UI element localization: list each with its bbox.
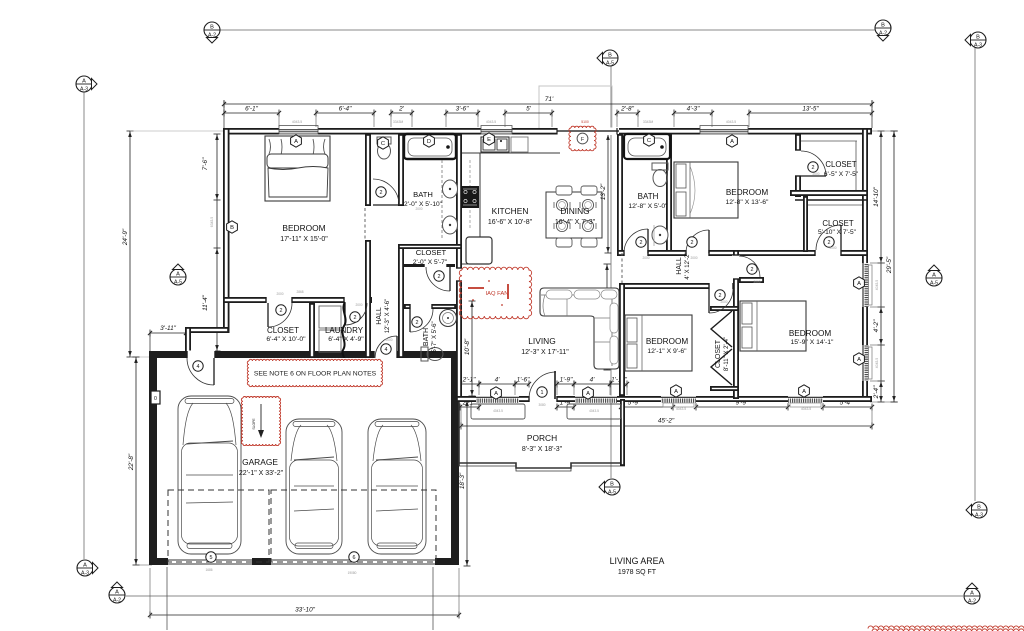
svg-text:12'-8" X 5'-0": 12'-8" X 5'-0" [628, 203, 668, 210]
svg-text:2000: 2000 [829, 246, 836, 250]
svg-text:C: C [647, 138, 651, 144]
svg-text:5100: 5100 [581, 120, 589, 124]
svg-text:BEDROOM: BEDROOM [789, 329, 831, 338]
svg-text:2868: 2868 [296, 290, 303, 294]
svg-text:2: 2 [640, 240, 643, 246]
svg-text:HALL: HALL [676, 257, 683, 275]
svg-text:2: 2 [354, 315, 357, 321]
svg-text:A: A [857, 281, 861, 287]
svg-text:2000: 2000 [812, 172, 819, 176]
svg-text:2'-8": 2'-8" [620, 106, 634, 113]
svg-text:2': 2' [398, 106, 405, 113]
svg-text:A: A [730, 139, 734, 145]
svg-text:A: A [83, 563, 87, 569]
svg-text:BEDROOM: BEDROOM [282, 223, 325, 233]
svg-text:11'-4": 11'-4" [202, 294, 209, 311]
svg-text:D: D [427, 139, 431, 145]
svg-text:CLOSET: CLOSET [416, 248, 447, 257]
svg-text:6343.5: 6343.5 [210, 217, 214, 227]
svg-text:A: A [176, 272, 180, 278]
svg-text:A-5: A-5 [608, 490, 616, 496]
svg-text:16'-4" X 7'-3": 16'-4" X 7'-3" [555, 219, 596, 226]
svg-text:A: A [294, 139, 298, 145]
svg-text:4043.5: 4043.5 [801, 407, 811, 411]
svg-text:2: 2 [719, 293, 722, 299]
svg-text:14'-10": 14'-10" [873, 186, 880, 207]
svg-text:17'-11" X 15'-0": 17'-11" X 15'-0" [280, 236, 328, 243]
svg-text:LIVING AREA: LIVING AREA [610, 556, 665, 566]
svg-text:33'-10": 33'-10" [295, 607, 316, 614]
svg-text:1686: 1686 [205, 568, 212, 572]
svg-text:4043.5: 4043.5 [292, 120, 302, 124]
svg-text:2: 2 [691, 240, 694, 246]
svg-text:5'-10" X 7'-5": 5'-10" X 7'-5" [818, 229, 857, 236]
svg-text:2000: 2000 [753, 280, 760, 284]
svg-text:2'-0" X 5'-7": 2'-0" X 5'-7" [413, 259, 448, 266]
svg-text:4043.5: 4043.5 [676, 407, 686, 411]
svg-text:B: B [976, 35, 980, 41]
svg-text:A: A [932, 273, 936, 279]
svg-text:F: F [581, 137, 585, 143]
svg-text:6'-4": 6'-4" [339, 106, 352, 113]
svg-text:IAQ FAN: IAQ FAN [486, 291, 509, 297]
svg-text:29'-5": 29'-5" [886, 256, 893, 274]
svg-text:22'-1" X 33'-2": 22'-1" X 33'-2" [239, 470, 284, 477]
svg-text:6'-4" X 10'-0": 6'-4" X 10'-0" [266, 336, 306, 343]
svg-text:BATH: BATH [413, 190, 433, 199]
svg-text:A-5: A-5 [930, 281, 938, 287]
svg-text:B: B [230, 225, 234, 231]
svg-text:71': 71' [545, 96, 554, 103]
svg-text:0: 0 [154, 396, 157, 402]
svg-text:A: A [115, 590, 119, 596]
svg-text:6: 6 [353, 555, 356, 561]
svg-text:2: 2 [751, 267, 754, 273]
svg-text:6'-4" X 4'-9": 6'-4" X 4'-9" [328, 336, 364, 343]
svg-text:7'-6": 7'-6" [202, 157, 209, 170]
svg-text:A-2: A-2 [968, 599, 976, 605]
svg-text:2'-1": 2'-1" [462, 377, 476, 384]
svg-text:A-3: A-3 [975, 513, 983, 519]
svg-text:13'-5": 13'-5" [802, 106, 819, 113]
svg-text:B: B [881, 23, 885, 29]
svg-text:KITCHEN: KITCHEN [492, 206, 529, 216]
svg-text:A-5: A-5 [606, 61, 614, 67]
svg-text:E: E [487, 137, 491, 143]
svg-text:12'-8" X 13'-6": 12'-8" X 13'-6" [726, 199, 770, 206]
svg-text:22'-8": 22'-8" [128, 453, 135, 471]
svg-text:A: A [674, 389, 678, 395]
svg-text:4043.5: 4043.5 [875, 358, 879, 368]
svg-text:5': 5' [526, 106, 532, 113]
svg-text:A: A [802, 389, 806, 395]
svg-text:SLOPE: SLOPE [252, 418, 256, 430]
svg-text:2000: 2000 [642, 256, 649, 260]
svg-text:CLOSET: CLOSET [825, 160, 856, 169]
svg-text:15'-9" X 14'-1": 15'-9" X 14'-1" [791, 339, 835, 346]
svg-text:B: B [210, 25, 214, 31]
svg-text:4043.5: 4043.5 [486, 120, 496, 124]
svg-text:2'-0" X 5'-10": 2'-0" X 5'-10" [404, 201, 443, 208]
svg-text:2000: 2000 [385, 338, 392, 342]
svg-text:2: 2 [380, 190, 383, 196]
svg-text:A-5: A-5 [174, 280, 182, 286]
svg-text:4'-2": 4'-2" [873, 319, 880, 332]
svg-text:10'-8": 10'-8" [464, 338, 471, 355]
svg-text:4043.5: 4043.5 [726, 120, 736, 124]
svg-text:CLOSET: CLOSET [715, 339, 722, 368]
svg-text:4'-3": 4'-3" [687, 106, 700, 113]
svg-text:A: A [586, 391, 590, 397]
svg-text:4: 4 [197, 364, 200, 370]
svg-text:24'-9": 24'-9" [122, 228, 129, 246]
svg-text:4043.5: 4043.5 [493, 409, 503, 413]
svg-text:A: A [494, 391, 498, 397]
svg-text:5: 5 [210, 555, 213, 561]
svg-text:2: 2 [416, 320, 419, 326]
svg-text:8'-11" X 2'-4": 8'-11" X 2'-4" [724, 337, 730, 371]
svg-text:18'-3": 18'-3" [459, 472, 466, 489]
svg-text:2000: 2000 [720, 300, 727, 304]
svg-text:4' X 12'-2": 4' X 12'-2" [685, 252, 691, 279]
svg-text:3'-11": 3'-11" [160, 325, 177, 332]
svg-text:12'-3" X 17'-11": 12'-3" X 17'-11" [521, 349, 569, 356]
svg-text:2'-4": 2'-4" [873, 385, 880, 399]
svg-text:DINING: DINING [560, 206, 589, 216]
svg-text:3080: 3080 [538, 403, 545, 407]
svg-text:16'-6" X 10'-8": 16'-6" X 10'-8" [488, 219, 533, 226]
svg-text:BEDROOM: BEDROOM [646, 337, 688, 346]
svg-text:A-3: A-3 [974, 43, 982, 49]
svg-text:B: B [610, 482, 614, 488]
svg-text:GARAGE: GARAGE [242, 457, 278, 467]
svg-text:2: 2 [438, 274, 441, 280]
svg-text:12'-1" X 9'-6": 12'-1" X 9'-6" [647, 348, 687, 355]
svg-text:LAUNDRY: LAUNDRY [325, 326, 364, 335]
svg-text:6'-1": 6'-1" [245, 106, 258, 113]
svg-text:B: B [608, 53, 612, 59]
svg-text:BATH: BATH [638, 192, 659, 201]
svg-text:19080: 19080 [348, 571, 357, 575]
svg-text:3'-6": 3'-6" [456, 106, 469, 113]
svg-text:LIVING: LIVING [528, 336, 555, 346]
svg-text:A: A [970, 591, 974, 597]
svg-text:6'-5" X 7'-5": 6'-5" X 7'-5" [824, 171, 859, 178]
svg-text:4': 4' [590, 377, 596, 384]
svg-text:A-2: A-2 [113, 598, 121, 604]
svg-text:BEDROOM: BEDROOM [726, 188, 768, 197]
svg-text:A: A [857, 357, 861, 363]
svg-text:4': 4' [495, 377, 501, 384]
svg-text:PORCH: PORCH [527, 433, 557, 443]
svg-text:4043.5: 4043.5 [589, 409, 599, 413]
svg-text:3343M: 3343M [393, 120, 404, 124]
svg-text:C: C [381, 141, 385, 147]
svg-text:CLOSET: CLOSET [267, 326, 299, 335]
svg-text:2000: 2000 [690, 256, 697, 260]
svg-text:A-3: A-3 [81, 571, 89, 577]
svg-text:4: 4 [385, 347, 388, 353]
svg-text:A-3: A-3 [80, 87, 88, 93]
svg-text:12'-3" X 4'-6": 12'-3" X 4'-6" [385, 299, 391, 334]
svg-text:45'-2": 45'-2" [658, 418, 675, 425]
svg-text:8'-3" X 18'-3": 8'-3" X 18'-3" [522, 446, 563, 453]
svg-text:1'-9": 1'-9" [560, 377, 573, 384]
svg-text:1'-6": 1'-6" [517, 377, 530, 384]
svg-text:2000: 2000 [276, 292, 283, 296]
svg-text:SEE NOTE 6 ON FLOOR PLAN NOTES: SEE NOTE 6 ON FLOOR PLAN NOTES [254, 371, 377, 378]
svg-text:B: B [977, 505, 981, 511]
svg-text:A: A [82, 79, 86, 85]
svg-text:CLOSET: CLOSET [822, 219, 853, 228]
svg-text:3343M: 3343M [643, 120, 654, 124]
svg-text:4043.5: 4043.5 [875, 280, 879, 290]
svg-text:2: 2 [280, 308, 283, 314]
svg-text:1: 1 [541, 390, 544, 396]
svg-text:HALL: HALL [376, 307, 383, 325]
svg-text:5'-7" X 5'-6": 5'-7" X 5'-6" [432, 321, 438, 352]
svg-text:2000: 2000 [355, 303, 362, 307]
svg-text:BATH: BATH [423, 328, 430, 346]
svg-text:1978 SQ FT: 1978 SQ FT [618, 569, 657, 576]
svg-text:2: 2 [812, 165, 815, 171]
